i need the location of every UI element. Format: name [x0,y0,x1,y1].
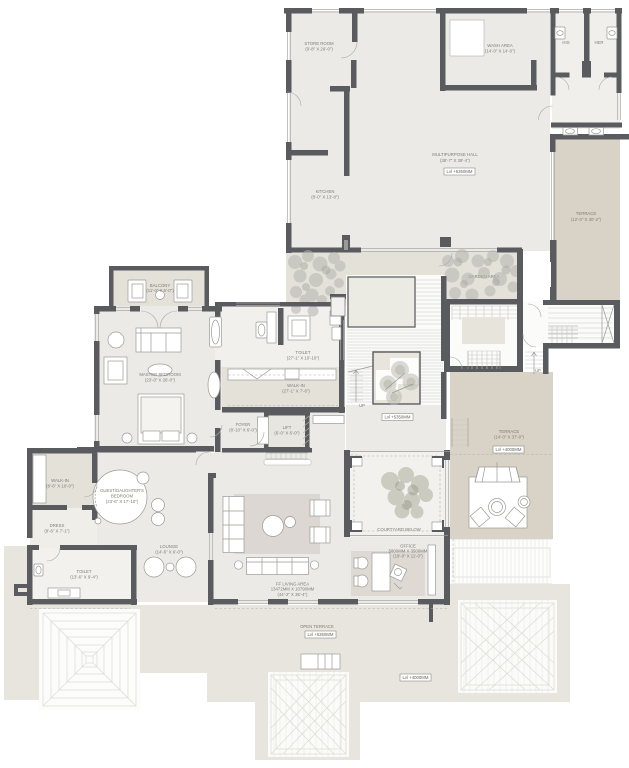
svg-text:UP: UP [535,368,541,373]
svg-text:DRESS: DRESS [50,523,65,528]
svg-text:(14'-0" X 37'-0"): (14'-0" X 37'-0") [494,435,525,440]
svg-text:(6'-0" X 6'-0"): (6'-0" X 6'-0") [274,431,300,436]
svg-text:(19'-0" X 11'-0"): (19'-0" X 11'-0") [393,554,423,559]
svg-text:(9'-8" X 26'-0"): (9'-8" X 26'-0") [305,47,333,52]
svg-text:Lvl +5350MM: Lvl +5350MM [385,415,411,420]
svg-text:(44'-2" X 35'-4"): (44'-2" X 35'-4") [277,592,308,597]
svg-text:GUEST/DAUGHTER'S: GUEST/DAUGHTER'S [100,488,144,493]
svg-text:(8'-6" X 7'-1"): (8'-6" X 7'-1") [44,529,70,534]
svg-text:(23'-6" X 17'-10"): (23'-6" X 17'-10") [106,499,139,504]
svg-text:(23'-0" X 26'-0"): (23'-0" X 26'-0") [145,378,176,383]
svg-text:(14'-6" X 6'-0"): (14'-6" X 6'-0") [155,550,183,555]
svg-text:(12'-0" X 30'-2"): (12'-0" X 30'-2") [571,217,602,222]
svg-text:(14'-0" X 14'-0"): (14'-0" X 14'-0") [485,49,516,54]
svg-text:Lvl +5350MM: Lvl +5350MM [447,169,473,174]
svg-text:UP: UP [359,403,365,408]
svg-text:BEDROOM: BEDROOM [111,494,134,499]
svg-text:KITCHEN: KITCHEN [316,189,335,194]
svg-text:(13'-6" X 9'-4"): (13'-6" X 9'-4") [70,575,98,580]
svg-text:(8'-6" X 10'-0"): (8'-6" X 10'-0") [46,484,74,489]
svg-text:WASH AREA: WASH AREA [487,43,513,48]
svg-text:Lvl +5350MM: Lvl +5350MM [308,632,334,637]
svg-text:TOILET: TOILET [296,350,311,355]
svg-text:Lvl +4000MM: Lvl +4000MM [403,675,429,680]
svg-text:(27'-1" X 10'-10"): (27'-1" X 10'-10") [287,356,320,361]
svg-text:TOILET: TOILET [77,569,92,574]
svg-text:STORE ROOM: STORE ROOM [304,41,334,46]
svg-text:LOUNGE: LOUNGE [160,544,178,549]
svg-text:WALK-IN: WALK-IN [51,478,69,483]
svg-text:MULTIPURPOSE HALL: MULTIPURPOSE HALL [432,152,478,157]
svg-text:COURTYARD BELOW: COURTYARD BELOW [377,527,421,532]
svg-text:Lvl +4000MM: Lvl +4000MM [496,447,522,452]
svg-text:(27'-1" X 7'-6"): (27'-1" X 7'-6") [282,389,310,394]
svg-text:HER: HER [594,40,603,45]
svg-text:FOYER: FOYER [236,422,251,427]
svg-text:TERRACE: TERRACE [499,429,520,434]
svg-text:TERRACE: TERRACE [576,211,597,216]
svg-text:MASTER BEDROOM: MASTER BEDROOM [139,372,181,377]
svg-text:(8'-0" X 13'-8"): (8'-0" X 13'-8") [311,195,339,200]
svg-text:OPEN TERRACE: OPEN TERRACE [300,624,334,629]
svg-text:(38'-7" X 28'-4"): (38'-7" X 28'-4") [440,158,471,163]
svg-text:(8'-10" X 6'-0"): (8'-10" X 6'-0") [229,428,257,433]
svg-text:LIFT: LIFT [283,425,292,430]
svg-text:WALK-IN: WALK-IN [287,383,305,388]
svg-text:(11'-0" X 6'-0"): (11'-0" X 6'-0") [146,288,174,293]
svg-text:HIS: HIS [562,40,569,45]
